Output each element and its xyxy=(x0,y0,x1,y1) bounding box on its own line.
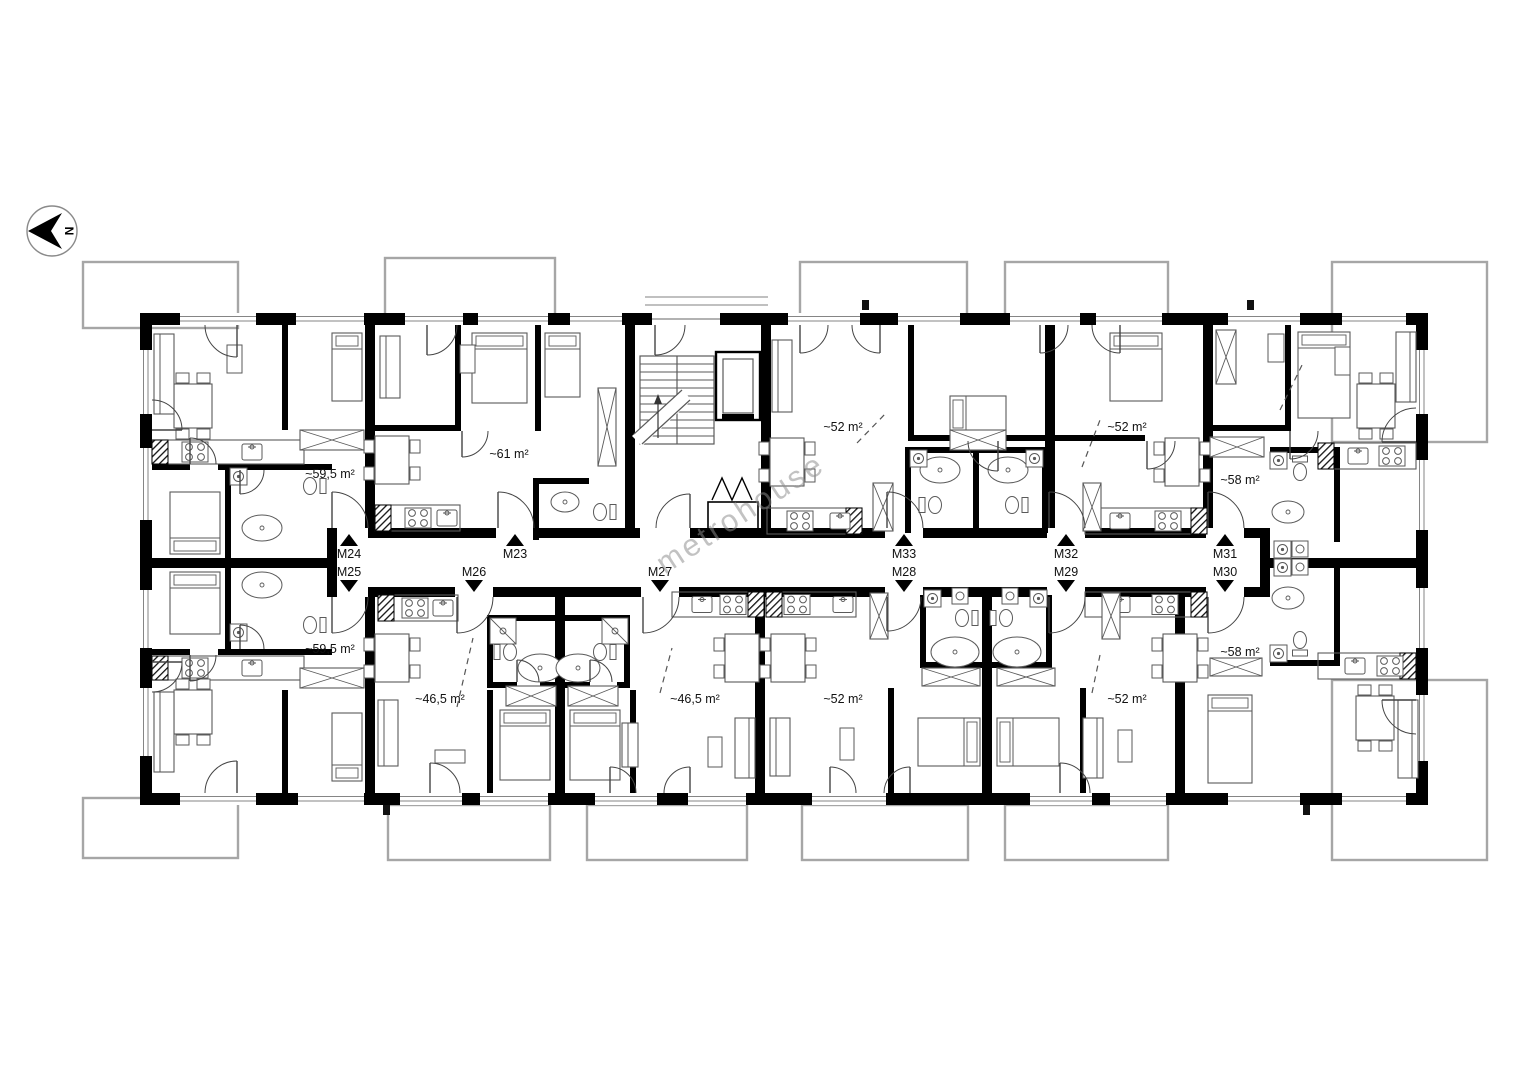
unit-label-m23: M23 xyxy=(503,547,527,561)
entrance-arrow-down-m29 xyxy=(1057,580,1075,592)
entrance-arrow-up-m31 xyxy=(1216,534,1234,546)
unit-label-m26: M26 xyxy=(462,565,486,579)
unit-label-m25: M25 xyxy=(337,565,361,579)
area-label-m32: ~52 m² xyxy=(1107,420,1146,434)
unit-label-m31: M31 xyxy=(1213,547,1237,561)
corridor-labels: M24 M25 M23 M26 M27 M33 M28 M32 M29 M31 … xyxy=(337,534,1237,592)
entrance-arrow-down-m25 xyxy=(340,580,358,592)
area-label-m24: ~59,5 m² xyxy=(305,467,355,481)
unit-label-m24: M24 xyxy=(337,547,361,561)
unit-label-m33: M33 xyxy=(892,547,916,561)
north-arrow: N xyxy=(27,206,77,256)
area-label-m27: ~46,5 m² xyxy=(670,692,720,706)
entrance-arrow-up-m32 xyxy=(1057,534,1075,546)
entrance-arrow-down-m27 xyxy=(651,580,669,592)
unit-label-m32: M32 xyxy=(1054,547,1078,561)
area-label-m29: ~52 m² xyxy=(1107,692,1146,706)
area-label-m28: ~52 m² xyxy=(823,692,862,706)
entrance-arrow-down-m28 xyxy=(895,580,913,592)
area-label-m33: ~52 m² xyxy=(823,420,862,434)
area-label-m30: ~58 m² xyxy=(1220,645,1259,659)
area-label-m25: ~59,5 m² xyxy=(305,642,355,656)
floorplan-page: M24 M25 M23 M26 M27 M33 M28 M32 M29 M31 … xyxy=(0,0,1528,1080)
north-arrow-pointer xyxy=(28,213,62,249)
entrance-arrow-down-m30 xyxy=(1216,580,1234,592)
entrance-arrow-up-m23 xyxy=(506,534,524,546)
area-label-m26: ~46,5 m² xyxy=(415,692,465,706)
entrance-arrow-up-m33 xyxy=(895,534,913,546)
unit-label-m28: M28 xyxy=(892,565,916,579)
entrance-arrow-down-m26 xyxy=(465,580,483,592)
unit-label-m30: M30 xyxy=(1213,565,1237,579)
north-label: N xyxy=(62,227,76,236)
entrance-arrow-up-m24 xyxy=(340,534,358,546)
area-label-m31: ~58 m² xyxy=(1220,473,1259,487)
unit-label-m29: M29 xyxy=(1054,565,1078,579)
floor-plan-drawing: M24 M25 M23 M26 M27 M33 M28 M32 M29 M31 … xyxy=(0,0,1528,1080)
area-label-m23: ~61 m² xyxy=(489,447,528,461)
